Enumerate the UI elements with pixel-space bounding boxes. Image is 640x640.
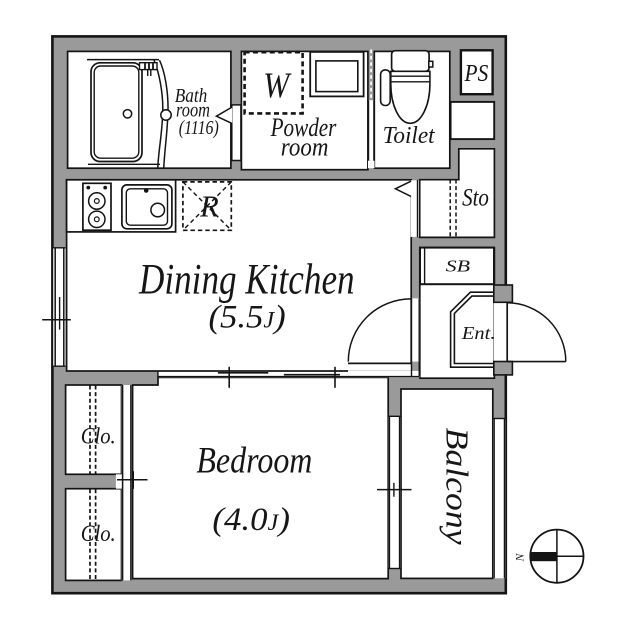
svg-text:Toilet: Toilet [383,122,436,149]
svg-text:Clo.: Clo. [81,521,116,546]
svg-text:Balcony: Balcony [440,428,476,546]
svg-text:R: R [199,189,219,223]
svg-text:Dining Kitchen: Dining Kitchen [138,256,354,303]
svg-text:SB: SB [446,257,471,276]
svg-text:Bedroom: Bedroom [196,441,312,482]
svg-text:(4.0J): (4.0J) [212,502,290,538]
svg-text:(1116): (1116) [179,117,219,139]
svg-text:PS: PS [464,60,489,87]
svg-text:room: room [281,132,329,161]
svg-text:(5.5J): (5.5J) [209,300,286,336]
svg-text:Clo.: Clo. [81,423,116,448]
svg-text:N: N [514,552,526,562]
svg-text:Sto: Sto [462,185,489,212]
svg-text:Ent.: Ent. [461,323,496,343]
svg-text:W: W [263,65,292,105]
